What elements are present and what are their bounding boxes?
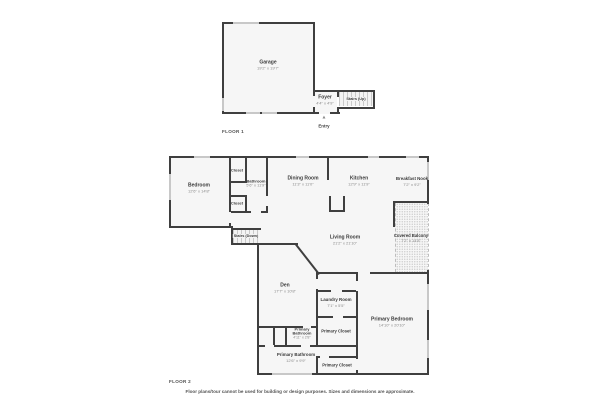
room-dims: 11'3" x 11'0" bbox=[287, 182, 318, 187]
room-label-primary-bathroom: Primary Bathroom 12'6" x 9'9" bbox=[277, 352, 315, 363]
room-dims: 4'4" x 4'9" bbox=[316, 101, 334, 106]
room-label-bedroom: Bedroom 12'6" x 14'8" bbox=[188, 182, 210, 193]
room-dims: 4'11" x 2'8" bbox=[290, 336, 314, 340]
wall-segment bbox=[313, 90, 375, 92]
room-name: Primary Closet bbox=[321, 328, 351, 333]
room-dims: 7'1" x 5'5" bbox=[321, 302, 352, 307]
window-segment bbox=[427, 284, 429, 310]
door-opening bbox=[331, 290, 342, 292]
door-opening bbox=[333, 316, 343, 318]
door-opening bbox=[229, 212, 231, 223]
entry-arrow-icon: ▲ bbox=[322, 116, 327, 121]
room-dims: 7'2" x 14'8" bbox=[394, 238, 428, 243]
garage-door-segment bbox=[246, 112, 260, 114]
wall-segment bbox=[337, 107, 339, 114]
wall-segment bbox=[318, 272, 427, 274]
window-segment bbox=[427, 340, 429, 358]
room-label-bathroom: Bathroom 5'6" x 11'9" bbox=[244, 180, 268, 189]
room-label-closet-top: Closet bbox=[231, 168, 243, 173]
room-label-breakfast-nook: Breakfast Nook 7'2" x 9'2" bbox=[396, 176, 428, 187]
door-opening bbox=[301, 345, 310, 347]
room-label-primary-bathroom-small: Primary Bathroom 4'11" x 2'8" bbox=[290, 328, 314, 341]
window-segment bbox=[296, 156, 309, 158]
room-label-stairs-up: Stairs (Up) bbox=[345, 97, 366, 101]
room-dims: 5'6" x 11'9" bbox=[244, 184, 268, 188]
window-segment bbox=[222, 98, 224, 111]
room-label-living-room: Living Room 21'2" x 21'10" bbox=[330, 234, 360, 245]
door-opening bbox=[356, 359, 358, 370]
window-segment bbox=[194, 156, 210, 158]
window-segment bbox=[368, 156, 379, 158]
window-segment bbox=[406, 156, 419, 158]
door-opening bbox=[266, 196, 268, 206]
door-opening bbox=[320, 356, 329, 358]
room-dims: 12'6" x 9'9" bbox=[277, 357, 315, 362]
wall-segment bbox=[231, 243, 298, 245]
door-opening bbox=[356, 281, 358, 291]
floor-2-label: FLOOR 2 bbox=[169, 379, 191, 384]
room-dims: 14'10" x 20'10" bbox=[371, 323, 413, 328]
room-label-primary-closet-mid: Primary Closet bbox=[321, 328, 351, 333]
room-dims: 12'9" x 11'9" bbox=[348, 182, 370, 187]
wall-segment bbox=[316, 356, 318, 375]
room-label-garage: Garage 19'2" x 19'7" bbox=[257, 59, 279, 70]
floorplan-canvas: Garage 19'2" x 19'7" Foyer 4'4" x 4'9" S… bbox=[0, 0, 600, 400]
window-segment bbox=[233, 22, 259, 24]
disclaimer-text: Floor plans/tour cannot be used for buil… bbox=[0, 389, 600, 394]
garage-door-segment bbox=[262, 112, 277, 114]
window-segment bbox=[169, 174, 171, 200]
wall-segment bbox=[229, 211, 268, 213]
wall-segment bbox=[285, 326, 287, 347]
entry-label: Entry bbox=[318, 124, 329, 129]
room-label-kitchen: Kitchen 12'9" x 11'9" bbox=[348, 175, 370, 186]
wall-segment bbox=[393, 201, 395, 227]
door-opening bbox=[358, 272, 370, 274]
door-opening bbox=[316, 279, 318, 289]
room-label-primary-bedroom: Primary Bedroom 14'10" x 20'10" bbox=[371, 316, 413, 327]
wall-segment bbox=[337, 107, 375, 109]
room-dims: 21'2" x 21'10" bbox=[330, 241, 360, 246]
wall-segment bbox=[257, 243, 259, 375]
kitchen-island-wall bbox=[343, 196, 345, 212]
room-label-stairs-down: Stairs (Down) bbox=[233, 234, 259, 238]
room-label-laundry-room: Laundry Room 7'1" x 5'5" bbox=[321, 297, 352, 308]
wall-segment bbox=[231, 228, 261, 230]
door-opening bbox=[251, 211, 261, 213]
wall-segment bbox=[393, 201, 429, 203]
room-dims: 19'2" x 19'7" bbox=[257, 66, 279, 71]
room-name: Primary Bathroom bbox=[277, 352, 315, 358]
wall-segment bbox=[327, 156, 329, 180]
room-name: Breakfast Nook bbox=[396, 176, 428, 182]
door-opening bbox=[265, 345, 274, 347]
wall-segment bbox=[169, 226, 233, 228]
wall-segment bbox=[337, 92, 339, 97]
room-label-covered-balcony: Covered Balcony 7'2" x 14'8" bbox=[394, 233, 428, 243]
room-dims: 12'6" x 14'8" bbox=[188, 189, 210, 194]
room-name: Closet bbox=[231, 168, 243, 173]
floor-1-label: FLOOR 1 bbox=[222, 129, 244, 134]
wall-segment bbox=[273, 326, 275, 347]
door-opening bbox=[313, 96, 315, 107]
room-label-closet-bottom: Closet bbox=[231, 201, 243, 206]
room-name: Primary Closet bbox=[322, 362, 352, 367]
room-label-foyer: Foyer 4'4" x 4'9" bbox=[316, 94, 334, 105]
room-label-dining-room: Dining Room 11'3" x 11'0" bbox=[287, 175, 318, 186]
room-name: Closet bbox=[231, 201, 243, 206]
room-dims: 7'2" x 9'2" bbox=[396, 181, 428, 186]
room-label-primary-closet-bottom: Primary Closet bbox=[322, 362, 352, 367]
room-name: Laundry Room bbox=[321, 297, 352, 303]
room-dims: 17'7" x 10'8" bbox=[274, 289, 296, 294]
room-label-den: Den 17'7" x 10'8" bbox=[274, 282, 296, 293]
window-segment bbox=[272, 373, 312, 375]
